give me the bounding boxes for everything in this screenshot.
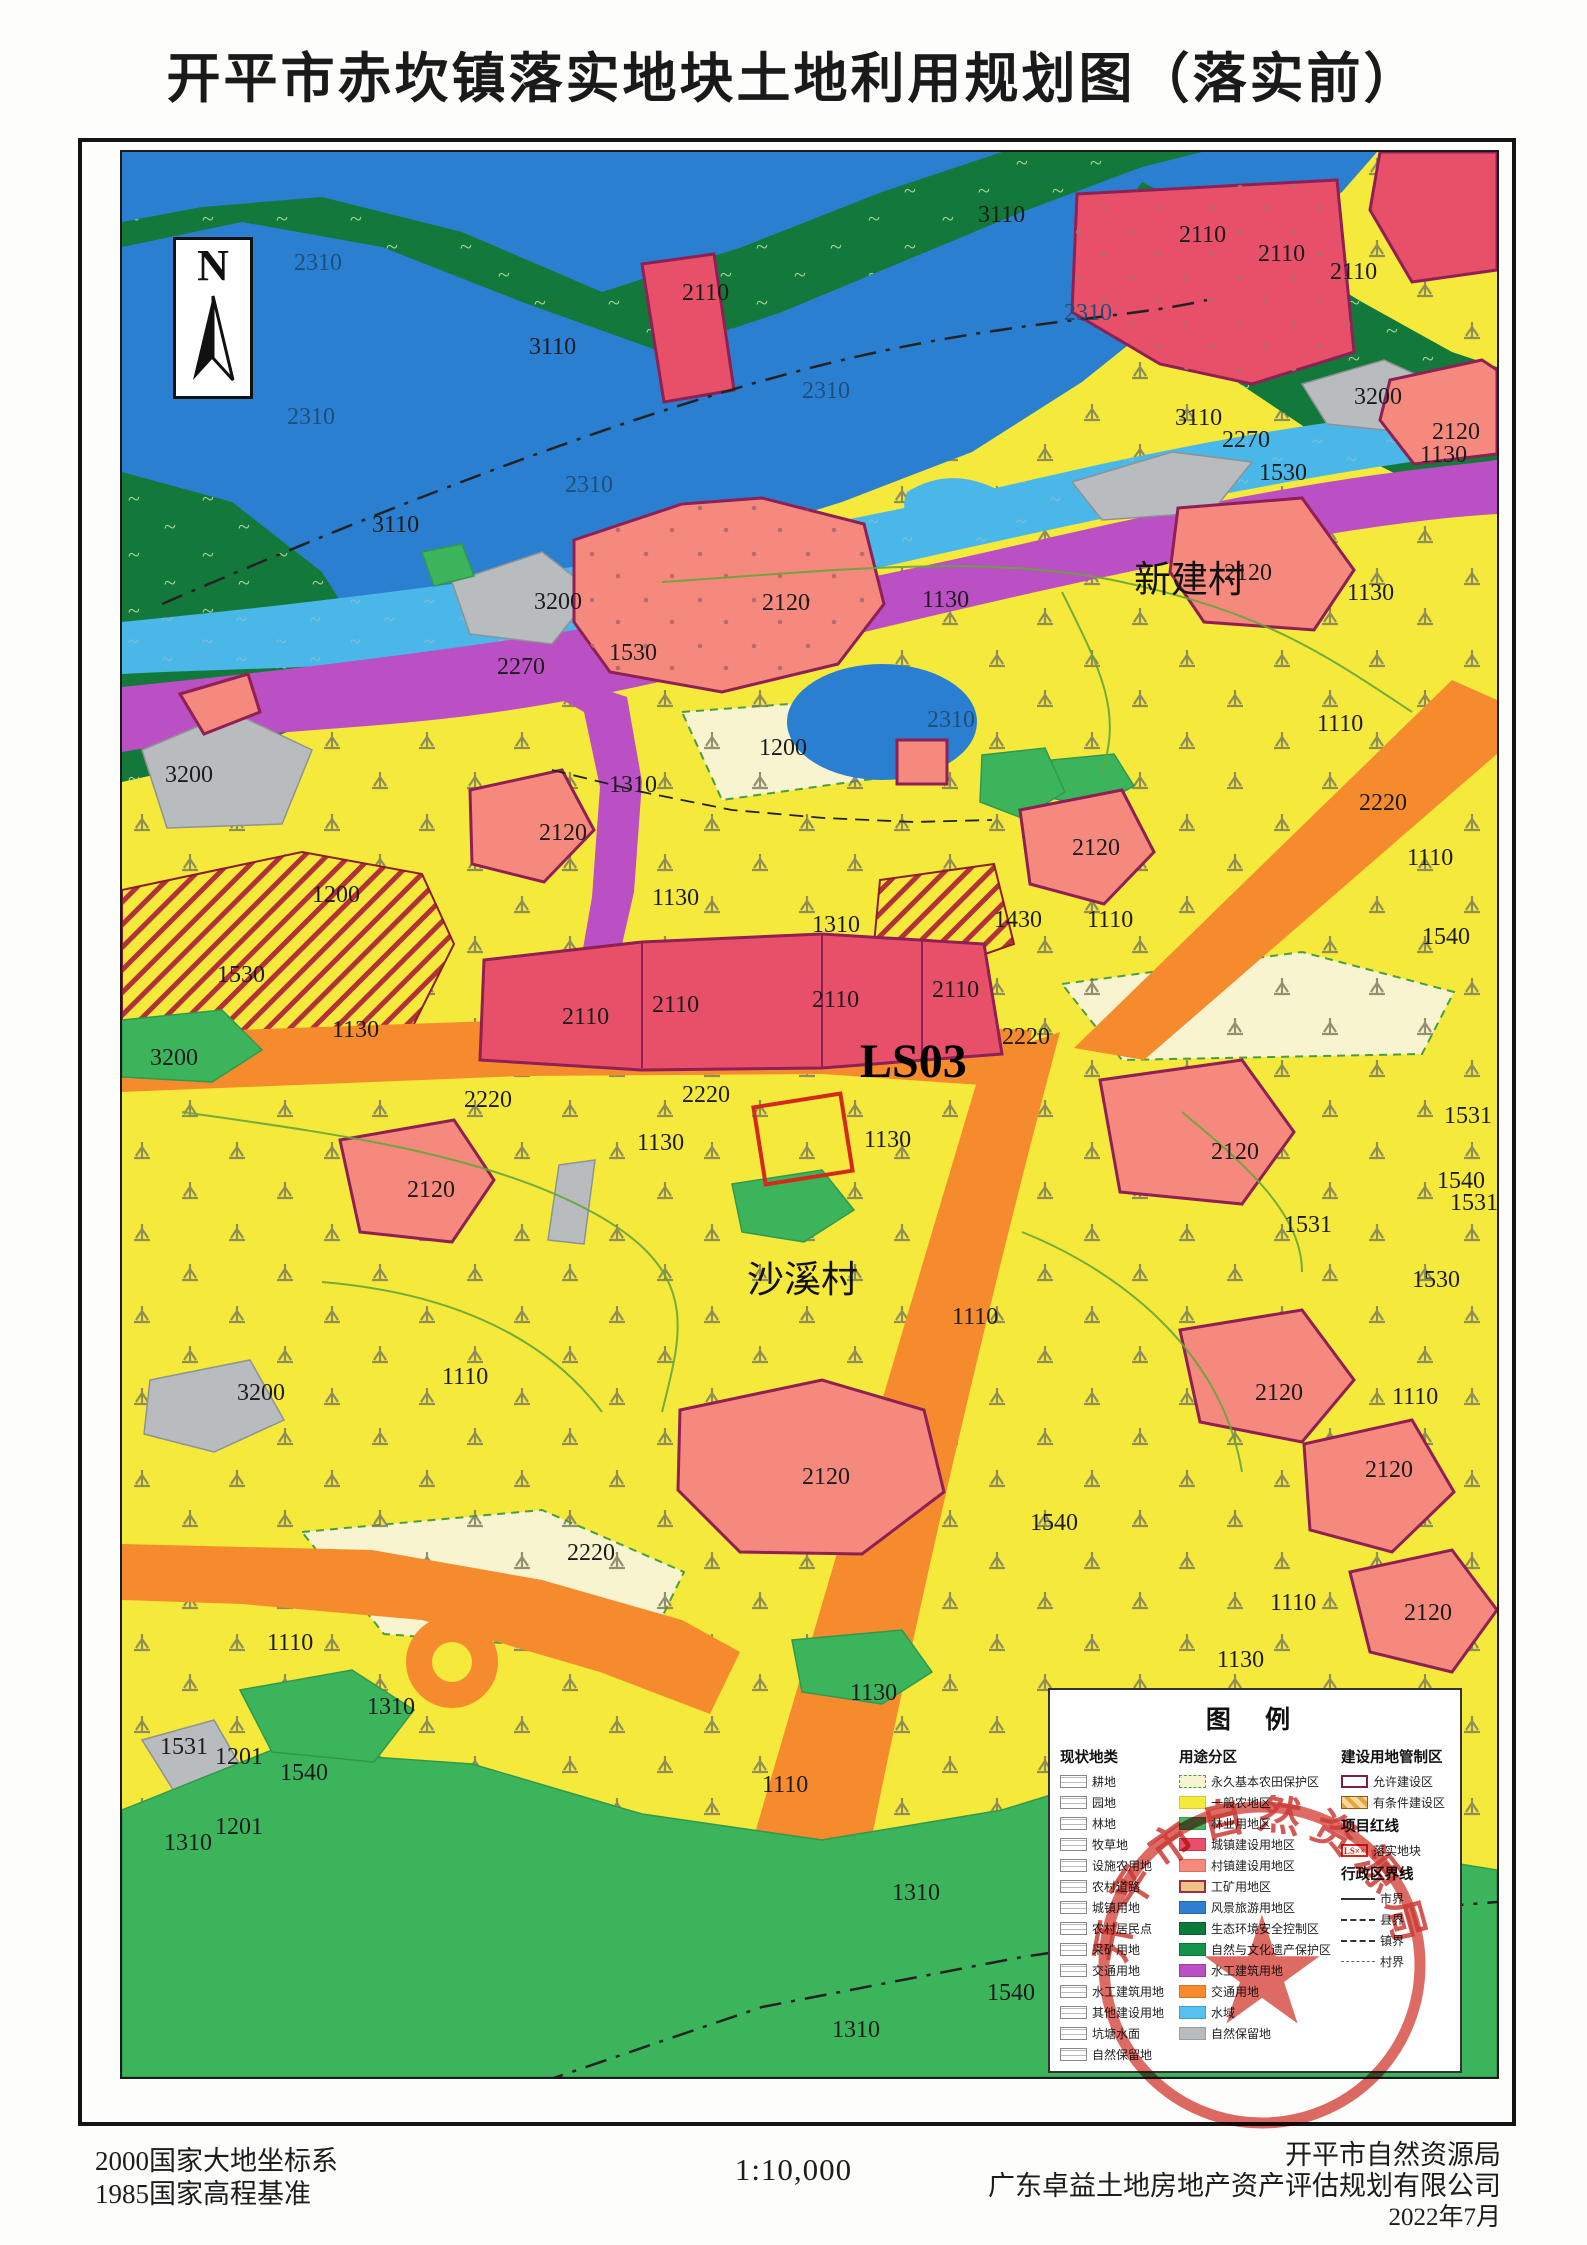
legend-item-label: 自然保留地 (1211, 2025, 1271, 2042)
legend-item-label: 一般农地区 (1211, 1794, 1271, 1811)
map-label: 2120 (407, 1177, 455, 1203)
legend-item-label: 工矿用地区 (1211, 1878, 1271, 1895)
legend-item-label: 自然保留地 (1092, 2046, 1152, 2063)
zone-color-swatch (1179, 1838, 1206, 1851)
legend-item: 牧草地 (1060, 1834, 1169, 1855)
map-label: 2120 (1365, 1457, 1413, 1483)
zone-color-swatch (1179, 1796, 1206, 1809)
legend-item: 永久基本农田保护区 (1179, 1771, 1331, 1792)
legend-item-label: 水工建筑用地 (1092, 1983, 1164, 2000)
map-label: 2220 (1002, 1024, 1050, 1050)
map-label: 2110 (1179, 222, 1226, 248)
map-label: 2120 (1211, 1139, 1259, 1165)
legend-item: 交通用地 (1060, 1960, 1169, 1981)
map-label: 2110 (562, 1004, 609, 1030)
land-type-swatch (1060, 1880, 1087, 1893)
legend-col1-items: 耕地园地林地牧草地设施农用地农村道路城镇用地农村居民点采矿用地交通用地水工建筑用… (1060, 1771, 1169, 2065)
legend-zoning-column: 用途分区 永久基本农田保护区一般农地区林业用地区城镇建设用地区村镇建设用地区工矿… (1179, 1744, 1331, 2065)
map-label: 1201 (215, 1814, 263, 1840)
map-label: 3110 (978, 202, 1025, 228)
legend-item: 村界 (1341, 1951, 1450, 1972)
land-type-swatch (1060, 1838, 1087, 1851)
map-label: 1531 (1450, 1190, 1497, 1216)
legend-item: 县界 (1341, 1909, 1450, 1930)
map-label: 1531 (1444, 1103, 1492, 1129)
map-label: 1110 (1270, 1590, 1316, 1616)
roundabout-hole (432, 1642, 472, 1682)
legend-item: 采矿用地 (1060, 1939, 1169, 1960)
legend-item-label: 设施农用地 (1092, 1857, 1152, 1874)
zone-color-swatch (1179, 1943, 1206, 1956)
legend-item-label: 水工建筑用地 (1211, 1962, 1283, 1979)
zone-color-swatch (1179, 2006, 1206, 2019)
map-label: 2120 (1072, 835, 1120, 861)
legend-item: 市界 (1341, 1888, 1450, 1909)
map-label: 2310 (927, 707, 975, 733)
credit-date: 2022年7月 (988, 2202, 1501, 2233)
legend-item: 城镇用地 (1060, 1897, 1169, 1918)
land-type-swatch (1060, 2006, 1087, 2019)
legend-item-label: 林业用地区 (1211, 1815, 1271, 1832)
map-label: 3110 (529, 334, 576, 360)
legend-item-label: 落实地块 (1373, 1842, 1421, 1859)
legend-col3-items2: LS××落实地块 (1341, 1840, 1450, 1861)
legend-item-label: 坑塘水面 (1092, 2025, 1140, 2042)
legend-item-label: 采矿用地 (1092, 1941, 1140, 1958)
legend-col2-header: 用途分区 (1179, 1746, 1331, 1767)
legend-item: 有条件建设区 (1341, 1792, 1450, 1813)
legend-item: 城镇建设用地区 (1179, 1834, 1331, 1855)
map-label: 2220 (464, 1087, 512, 1113)
zone-color-swatch (1179, 2027, 1206, 2040)
legend-item: 允许建设区 (1341, 1771, 1450, 1792)
credit-bureau: 开平市自然资源局 (988, 2140, 1501, 2171)
map-label: 3200 (1354, 384, 1402, 410)
land-type-swatch (1060, 1922, 1087, 1935)
legend-col3-header3: 行政区界线 (1341, 1863, 1450, 1884)
map-label: 3200 (534, 589, 582, 615)
legend-item: LS××落实地块 (1341, 1840, 1450, 1861)
map-label: 沙溪村 (747, 1260, 858, 1301)
legend-item-label: 耕地 (1092, 1773, 1116, 1790)
legend-item-label: 镇界 (1380, 1932, 1404, 1949)
map-label: 1110 (1407, 845, 1453, 871)
zone-color-swatch (1179, 1964, 1206, 1977)
legend-col3-header1: 建设用地管制区 (1341, 1746, 1450, 1767)
map-label: 1110 (442, 1364, 488, 1390)
map-label: 1540 (1030, 1510, 1078, 1536)
legend-item: 其他建设用地 (1060, 2002, 1169, 2023)
map-label: 2110 (682, 280, 729, 306)
legend-col2-items: 永久基本农田保护区一般农地区林业用地区城镇建设用地区村镇建设用地区工矿用地区风景… (1179, 1771, 1331, 2044)
map-label: 1531 (1284, 1212, 1332, 1238)
legend-item-label: 县界 (1380, 1911, 1404, 1928)
control-zone-swatch (1341, 1796, 1368, 1809)
map-label: 1310 (812, 912, 860, 938)
map-label: 2110 (652, 992, 699, 1018)
zone-color-swatch (1179, 1817, 1206, 1830)
map-label: 2310 (1064, 300, 1112, 326)
map-label: 1540 (280, 1760, 328, 1786)
legend-item: 自然保留地 (1060, 2044, 1169, 2065)
map-label: 2120 (1224, 560, 1272, 586)
map-label: 1110 (267, 1630, 313, 1656)
legend-item-label: 园地 (1092, 1794, 1116, 1811)
boundary-line-sample (1341, 1898, 1375, 1900)
map-label: 1310 (367, 1694, 415, 1720)
credits: 开平市自然资源局 广东卓益土地房地产资产评估规划有限公司 2022年7月 (988, 2140, 1501, 2233)
credit-company: 广东卓益土地房地产资产评估规划有限公司 (988, 2171, 1501, 2202)
map-label: 1540 (987, 1980, 1035, 2006)
map-label: 2110 (1330, 259, 1377, 285)
north-arrow: N (173, 237, 253, 399)
legend-item: 水域 (1179, 2002, 1331, 2023)
map-label: 1130 (652, 885, 699, 911)
legend-item-label: 村界 (1380, 1953, 1404, 1970)
map-label: 1310 (832, 2017, 880, 2043)
legend-item-label: 农村居民点 (1092, 1920, 1152, 1937)
legend-item-label: 林地 (1092, 1815, 1116, 1832)
map-label: 2310 (565, 472, 613, 498)
map-label: 1531 (160, 1734, 208, 1760)
legend-col3-header2: 项目红线 (1341, 1815, 1450, 1836)
legend-item: 农村道路 (1060, 1876, 1169, 1897)
planning-map-page: 开平市赤坎镇落实地块土地利用规划图（落实前） ~ ~ ~ ~ (0, 0, 1587, 2245)
map-label: 1540 (1422, 924, 1470, 950)
legend-item: 林业用地区 (1179, 1813, 1331, 1834)
legend-item: 园地 (1060, 1792, 1169, 1813)
boundary-line-sample (1341, 1961, 1375, 1962)
legend-item-label: 永久基本农田保护区 (1211, 1773, 1319, 1790)
land-type-swatch (1060, 1775, 1087, 1788)
map-label: 2120 (1255, 1380, 1303, 1406)
map-label: 1130 (1217, 1647, 1264, 1673)
zone-color-swatch (1179, 1922, 1206, 1935)
map-label: 3110 (1175, 405, 1222, 431)
legend-item: 设施农用地 (1060, 1855, 1169, 1876)
map-label: 1130 (1420, 442, 1467, 468)
legend-item: 村镇建设用地区 (1179, 1855, 1331, 1876)
map-label: 2270 (1222, 427, 1270, 453)
legend-item-label: 村镇建设用地区 (1211, 1857, 1295, 1874)
zone-color-swatch (1179, 1901, 1206, 1914)
map-label: 2270 (497, 654, 545, 680)
map-label: 2220 (1359, 790, 1407, 816)
map-label: 1430 (994, 907, 1042, 933)
zone-color-swatch (1179, 1775, 1206, 1788)
legend-item: 风景旅游用地区 (1179, 1897, 1331, 1918)
map-label: 1130 (1347, 580, 1394, 606)
map-label: 1130 (637, 1130, 684, 1156)
map-label: 2110 (932, 977, 979, 1003)
legend-item: 自然保留地 (1179, 2023, 1331, 2044)
boundary-line-sample (1341, 1919, 1375, 1921)
land-type-swatch (1060, 1901, 1087, 1914)
legend-item: 林地 (1060, 1813, 1169, 1834)
land-type-swatch (1060, 1943, 1087, 1956)
map-label: 3110 (372, 512, 419, 538)
legend-item-label: 市界 (1380, 1890, 1404, 1907)
legend-item-label: 牧草地 (1092, 1836, 1128, 1853)
legend-item-label: 水域 (1211, 2004, 1235, 2021)
legend-item-label: 交通用地 (1092, 1962, 1140, 1979)
map-label: 1110 (952, 1304, 998, 1330)
north-arrow-icon (179, 292, 247, 388)
legend-box: 图 例 现状地类 耕地园地林地牧草地设施农用地农村道路城镇用地农村居民点采矿用地… (1048, 1688, 1462, 2073)
map-label: 2220 (682, 1082, 730, 1108)
legend-item-label: 有条件建设区 (1373, 1794, 1445, 1811)
legend-current-land-column: 现状地类 耕地园地林地牧草地设施农用地农村道路城镇用地农村居民点采矿用地交通用地… (1060, 1744, 1169, 2065)
page-title: 开平市赤坎镇落实地块土地利用规划图（落实前） (0, 34, 1587, 113)
land-type-swatch (1060, 1985, 1087, 1998)
map-label: 1310 (892, 1880, 940, 1906)
map-label: 2310 (287, 404, 335, 430)
map-label: LS03 (860, 1035, 967, 1088)
map-label: 1110 (1087, 907, 1133, 933)
legend-item: 交通用地 (1179, 1981, 1331, 2002)
legend-item: 耕地 (1060, 1771, 1169, 1792)
legend-item: 工矿用地区 (1179, 1876, 1331, 1897)
map-label: 2120 (762, 590, 810, 616)
map-label: 2220 (567, 1540, 615, 1566)
legend-col3-items3: 市界县界镇界村界 (1341, 1888, 1450, 1972)
map-label: 1310 (164, 1830, 212, 1856)
boundary-line-sample (1341, 1940, 1375, 1942)
map-label: 1110 (1317, 711, 1363, 737)
plot-swatch: LS×× (1341, 1844, 1368, 1857)
map-label: 3200 (237, 1380, 285, 1406)
legend-item: 生态环境安全控制区 (1179, 1918, 1331, 1939)
legend-item-label: 自然与文化遗产保护区 (1211, 1941, 1331, 1958)
map-label: 1530 (1259, 460, 1307, 486)
legend-item: 自然与文化遗产保护区 (1179, 1939, 1331, 1960)
map-label: 3200 (150, 1045, 198, 1071)
legend-item-label: 允许建设区 (1373, 1773, 1433, 1790)
map-label: 2110 (1258, 241, 1305, 267)
map-label: 2310 (802, 378, 850, 404)
legend-item: 一般农地区 (1179, 1792, 1331, 1813)
map-label: 1110 (762, 1772, 808, 1798)
land-type-swatch (1060, 1859, 1087, 1872)
map-label: 1110 (1392, 1384, 1438, 1410)
legend-item-label: 生态环境安全控制区 (1211, 1920, 1319, 1937)
legend-item: 镇界 (1341, 1930, 1450, 1951)
legend-item: 水工建筑用地 (1060, 1981, 1169, 2002)
map-label: 2110 (812, 987, 859, 1013)
legend-control-column: 建设用地管制区 允许建设区有条件建设区 项目红线 LS××落实地块 行政区界线 … (1341, 1744, 1450, 2065)
legend-item: 坑塘水面 (1060, 2023, 1169, 2044)
land-type-swatch (1060, 2027, 1087, 2040)
map-label: 1130 (850, 1680, 897, 1706)
legend-col1-header: 现状地类 (1060, 1746, 1169, 1767)
map-label: 1530 (1412, 1267, 1460, 1293)
map-label: 1130 (864, 1127, 911, 1153)
map-label: 2120 (802, 1464, 850, 1490)
legend-item: 农村居民点 (1060, 1918, 1169, 1939)
map-label: 1200 (759, 735, 807, 761)
map-label: 1310 (609, 772, 657, 798)
north-letter: N (176, 240, 250, 292)
legend-item-label: 交通用地 (1211, 1983, 1259, 2000)
map-label: 1130 (922, 587, 969, 613)
land-type-swatch (1060, 1964, 1087, 1977)
zone-color-swatch (1179, 1859, 1206, 1872)
map-label: 1130 (332, 1017, 379, 1043)
map-label: 1530 (609, 640, 657, 666)
zone-color-swatch (1179, 1985, 1206, 1998)
legend-item-label: 城镇用地 (1092, 1899, 1140, 1916)
legend-item-label: 其他建设用地 (1092, 2004, 1164, 2021)
zone-color-swatch (1179, 1880, 1206, 1893)
legend-col3-items1: 允许建设区有条件建设区 (1341, 1771, 1450, 1813)
map-label: 1530 (217, 962, 265, 988)
land-type-swatch (1060, 1817, 1087, 1830)
map-label: 2310 (294, 250, 342, 276)
map-label: 3200 (165, 762, 213, 788)
map-label: 2120 (1404, 1600, 1452, 1626)
map-label: 1200 (312, 882, 360, 908)
control-zone-swatch (1341, 1775, 1368, 1788)
legend-item-label: 风景旅游用地区 (1211, 1899, 1295, 1916)
legend-title: 图 例 (1060, 1700, 1450, 1736)
legend-item-label: 城镇建设用地区 (1211, 1836, 1295, 1853)
map-label: 1201 (215, 1744, 263, 1770)
land-type-swatch (1060, 1796, 1087, 1809)
legend-item-label: 农村道路 (1092, 1878, 1140, 1895)
land-type-swatch (1060, 2048, 1087, 2061)
map-label: 2120 (539, 820, 587, 846)
legend-item: 水工建筑用地 (1179, 1960, 1331, 1981)
